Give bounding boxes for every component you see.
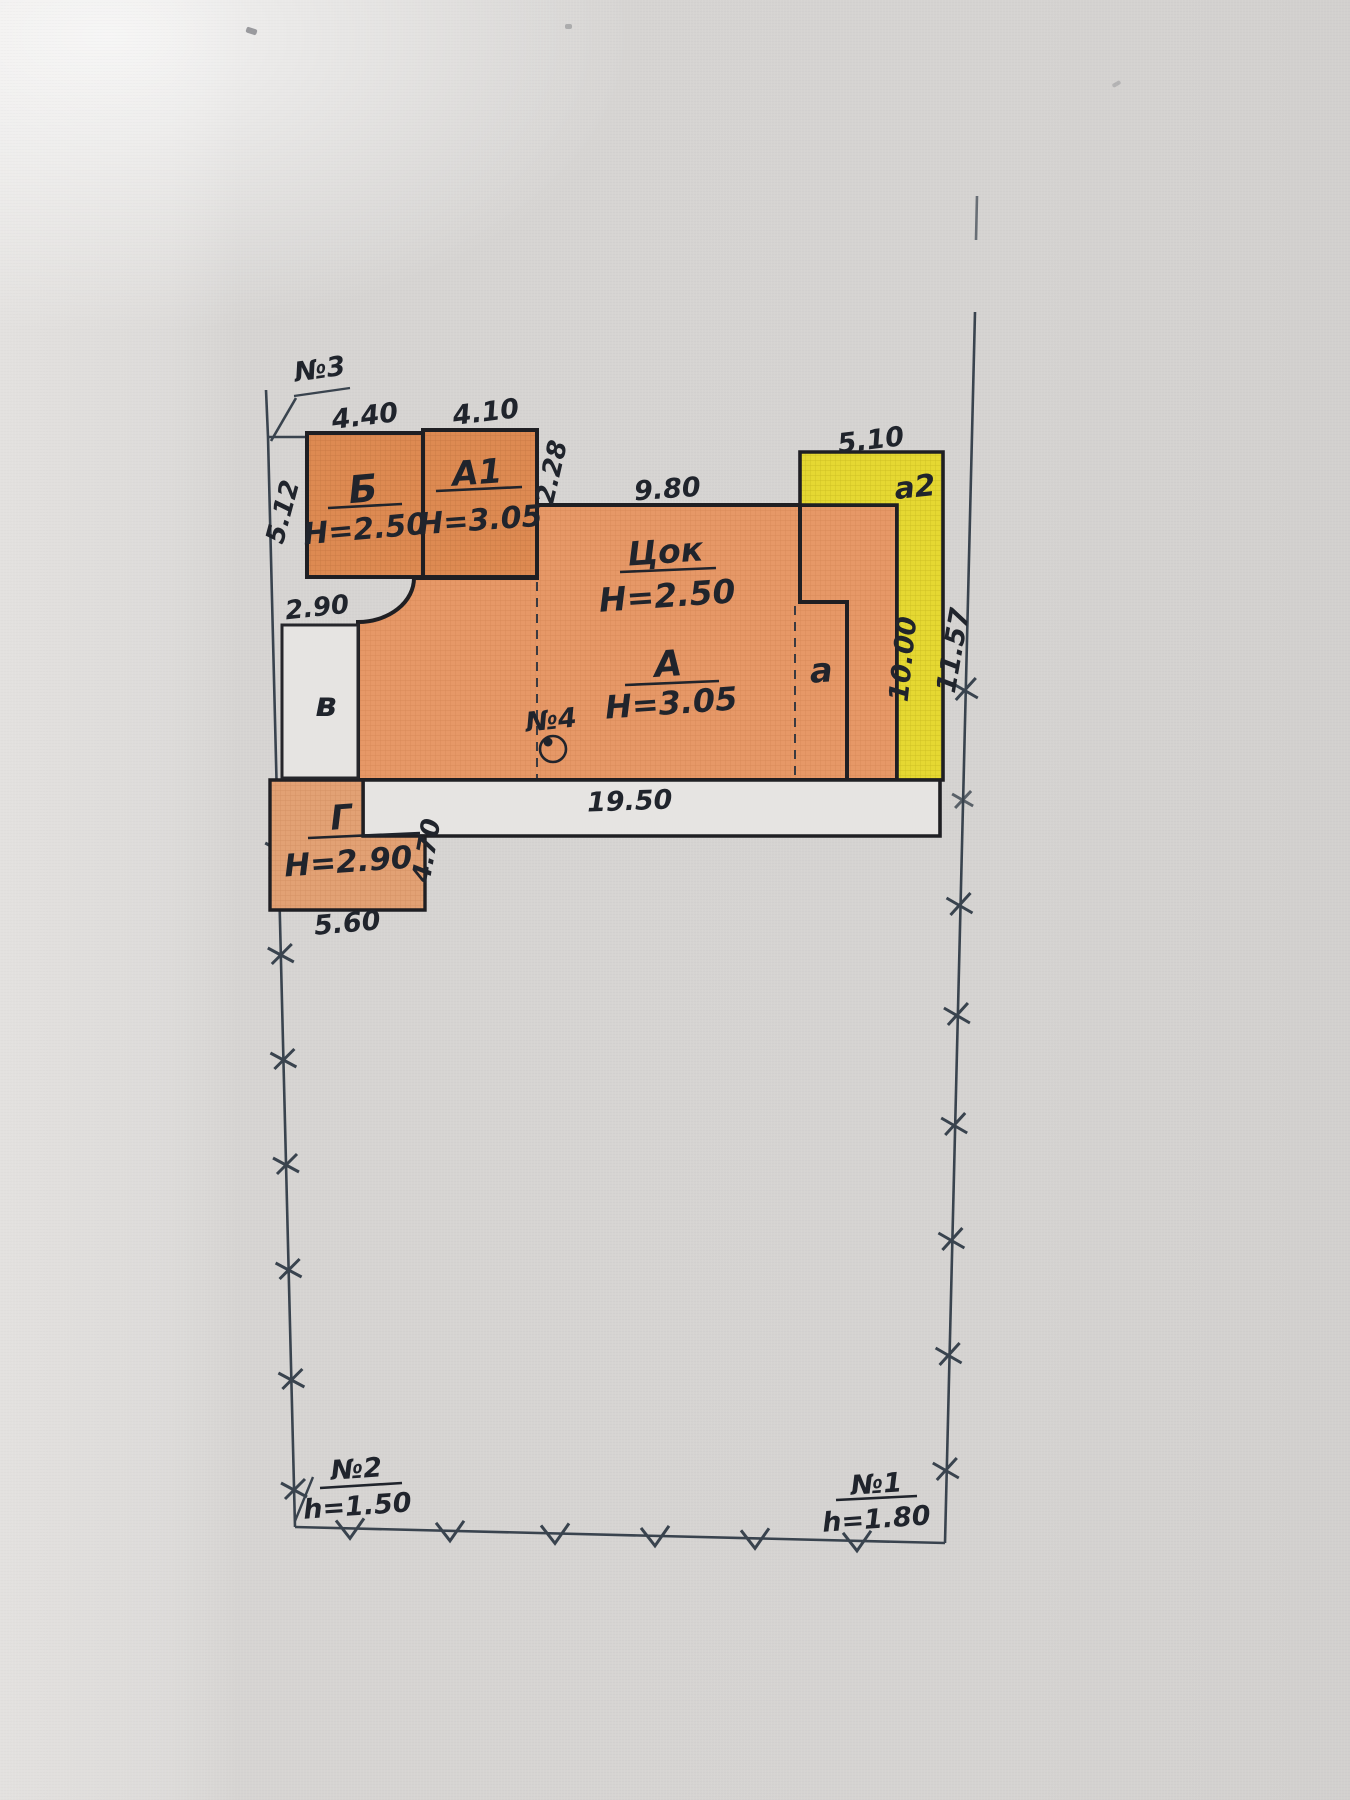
photographed-plan-screen: 4.40 4.10 2.28 5.12 9.80 5.10 2.90 Б Н=2… [0,0,1350,1800]
dim-b-top: 4.40 [329,397,400,436]
marker-n1-height: h=1.80 [821,1500,931,1538]
block-a-label: А [650,643,684,686]
dim-b-left: 5.12 [260,477,306,547]
block-cok-label: Цок [626,529,706,573]
dim-v-top: 2.90 [284,590,351,627]
marker-n3-label: №3 [291,351,347,389]
dim-a1-top: 4.10 [450,393,521,432]
boundary-right-stub [976,196,977,240]
boundary-left-line [266,390,295,1527]
block-b-label: Б [347,466,380,512]
block-a1-label: А1 [448,451,504,495]
dim-main-bottom: 19.50 [586,785,672,819]
dim-g-bottom: 5.60 [313,905,382,942]
boundary-right-line [945,312,975,1543]
dim-main-top: 9.80 [633,472,702,508]
marker-n2-label: №2 [329,1452,383,1487]
block-annex-a2-label: а2 [893,468,938,507]
marker-n3-leader [271,398,296,441]
marker-n1-label: №1 [849,1467,903,1502]
marker-n3-underline [294,388,350,396]
marker-n4-label: №4 [523,702,578,738]
parcel-plan-drawing: 4.40 4.10 2.28 5.12 9.80 5.10 2.90 Б Н=2… [0,0,1350,1800]
block-annex-a-label: а [808,650,834,692]
block-v-label: в [315,685,337,725]
marker-n2-height: h=1.50 [302,1487,412,1525]
